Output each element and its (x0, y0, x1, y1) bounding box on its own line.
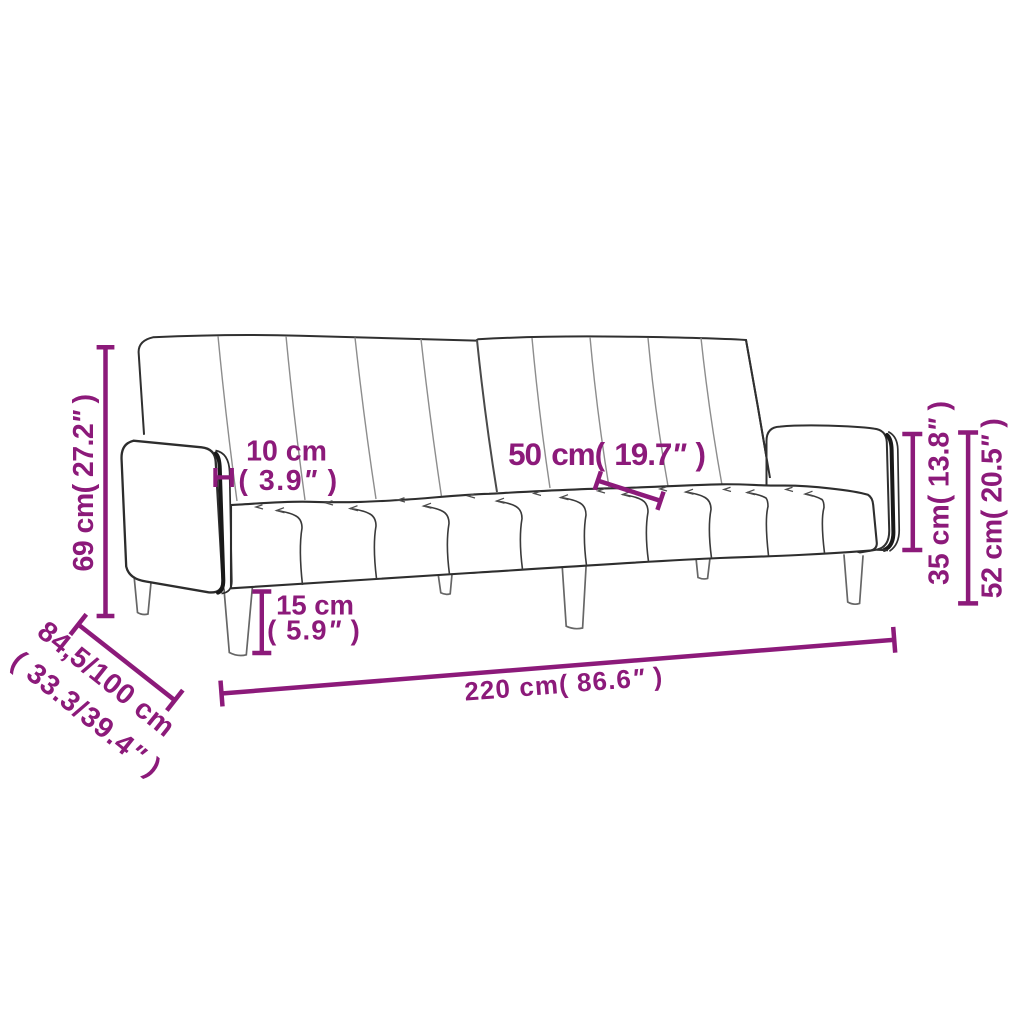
svg-text:50 cm( 19.7" ): 50 cm( 19.7" ) (508, 436, 705, 472)
svg-text:( 5.9" ): ( 5.9" ) (267, 615, 361, 646)
svg-text:10 cm: 10 cm (246, 436, 327, 468)
svg-text:52 cm( 20.5" ): 52 cm( 20.5" ) (977, 419, 1009, 599)
svg-text:( 3.9" ): ( 3.9" ) (238, 465, 338, 497)
svg-text:69 cm( 27.2" ): 69 cm( 27.2" ) (68, 394, 100, 571)
svg-text:35 cm( 13.8" ): 35 cm( 13.8" ) (924, 401, 956, 585)
